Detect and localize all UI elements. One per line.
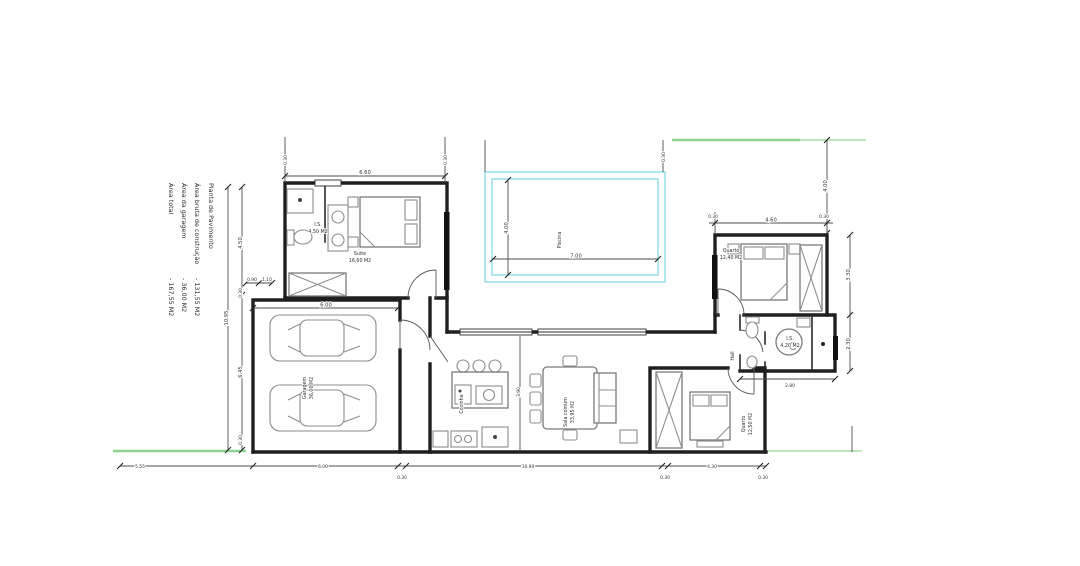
car-icon: [270, 315, 376, 361]
svg-text:- 36,00 M2: - 36,00 M2: [180, 278, 188, 312]
bedroom2-furniture: [656, 372, 730, 448]
svg-text:2.30: 2.30: [846, 338, 852, 350]
svg-text:0.30: 0.30: [660, 475, 670, 481]
svg-text:0.30: 0.30: [238, 435, 244, 445]
dim-left-segments: 4.50 6.45 0.30 0.30: [238, 184, 245, 453]
legend-title: Planta de Pavimento: [207, 183, 215, 249]
svg-text:0.30: 0.30: [238, 288, 244, 298]
dim-top-left-width: 6.60 0.30 0.30: [282, 137, 449, 181]
stool-icon: [473, 360, 485, 372]
dim-right-side: 3.30 2.30: [846, 232, 853, 374]
toilet-tank: [287, 230, 294, 245]
svg-text:- 167,55 M2: - 167,55 M2: [167, 278, 175, 316]
dim-living-divider: 3.90: [516, 336, 522, 450]
stool-icon: [489, 360, 501, 372]
svg-text:4.30: 4.30: [707, 464, 717, 470]
car-icon: [270, 385, 376, 431]
sink-icon: [332, 234, 344, 246]
tv-bench: [620, 430, 637, 443]
room-label-bedroom2: Quarto 12,50 M2: [741, 413, 754, 435]
dining-table: [543, 367, 597, 429]
svg-text:6.00: 6.00: [318, 464, 328, 470]
sink-icon: [797, 318, 810, 327]
dim-left-total: 10.95: [224, 184, 231, 453]
svg-text:10.90: 10.90: [522, 464, 535, 470]
dim-pool: 4.00 7.00: [490, 177, 661, 278]
nightstand: [348, 197, 358, 207]
svg-text:7.00: 7.00: [570, 254, 582, 260]
svg-text:4,50 M2: 4,50 M2: [308, 229, 327, 235]
floor-plan-drawing: Piscina: [0, 0, 1080, 566]
suite-furniture: [287, 189, 420, 296]
svg-text:36,00 M2: 36,00 M2: [309, 377, 315, 399]
svg-text:Quarto: Quarto: [741, 416, 747, 433]
toilet-icon: [746, 322, 758, 338]
dim-pool-extensions: 0.30: [485, 140, 667, 172]
sink-icon: [332, 211, 344, 223]
living-furniture: [530, 356, 637, 443]
svg-text:12,40 M2: 12,40 M2: [720, 255, 742, 261]
window-band: [712, 255, 718, 299]
room-label-suite: Suite 16,60 M2: [349, 251, 371, 264]
svg-text:Área total: Área total: [167, 183, 176, 215]
svg-text:- 131,55 M2: - 131,55 M2: [193, 278, 201, 316]
nightstand: [348, 237, 358, 247]
svg-text:4.60: 4.60: [765, 218, 777, 224]
svg-text:0.30: 0.30: [283, 155, 289, 165]
floor-plan-page: Piscina: [0, 0, 1080, 566]
dim-small-pair: 0.90 1.10: [243, 277, 275, 286]
svg-text:0.30: 0.30: [819, 214, 829, 220]
bedroom1-furniture: [728, 244, 822, 311]
svg-text:0.30: 0.30: [758, 475, 768, 481]
svg-text:0.30: 0.30: [443, 155, 449, 165]
svg-text:4.50: 4.50: [238, 237, 244, 249]
svg-text:1.10: 1.10: [262, 277, 272, 283]
chair: [563, 356, 577, 366]
pool: Piscina: [485, 172, 665, 282]
garage-door: [400, 320, 430, 350]
svg-text:4.00: 4.00: [823, 180, 829, 192]
nightstand: [789, 244, 800, 254]
legend: Planta de Pavimento Área bruta de constr…: [167, 183, 215, 316]
svg-text:0.30: 0.30: [661, 152, 667, 162]
svg-text:3.90: 3.90: [516, 387, 522, 397]
chair: [530, 392, 541, 405]
svg-text:33,95 M2: 33,95 M2: [570, 401, 576, 423]
dim-bedroom1-width: 0.30 0.30 4.60: [708, 212, 833, 233]
bedroom1-door: [718, 289, 744, 315]
window: [315, 180, 341, 186]
svg-text:12,50 M2: 12,50 M2: [748, 413, 754, 435]
svg-text:16,60 M2: 16,60 M2: [349, 258, 371, 264]
svg-text:I.S.: I.S.: [786, 336, 794, 342]
sink-icon: [484, 390, 495, 401]
bed-bench: [697, 441, 723, 447]
dim-bath-width: 2.80: [737, 376, 838, 389]
svg-text:0.30: 0.30: [397, 475, 407, 481]
dim-garage-width: 6.00: [250, 303, 401, 312]
svg-text:I.S.: I.S.: [314, 222, 322, 228]
chair: [530, 410, 541, 423]
dim-bottom: 5.55 6.00 10.90 4.30 0.30 0.30 0.30: [117, 463, 769, 481]
svg-text:5.55: 5.55: [135, 464, 145, 470]
svg-text:0.90: 0.90: [247, 277, 257, 283]
stool-icon: [457, 360, 469, 372]
window-band: [444, 212, 450, 290]
svg-text:Garagem: Garagem: [302, 377, 308, 400]
svg-text:0.30: 0.30: [708, 214, 718, 220]
svg-text:6.00: 6.00: [320, 303, 332, 309]
svg-text:6.60: 6.60: [359, 170, 371, 176]
svg-text:3.30: 3.30: [846, 269, 852, 281]
svg-text:Hall: Hall: [730, 351, 736, 360]
sofa: [594, 373, 616, 423]
svg-text:Sala comum: Sala comum: [563, 397, 569, 427]
appliance: [433, 431, 448, 447]
room-label-kitchen: Cozinha: [459, 394, 465, 413]
svg-text:4.00: 4.00: [504, 222, 510, 234]
kitchen-furniture: [433, 360, 508, 447]
bidet-icon: [747, 356, 757, 368]
kitchen-door-leaf: [430, 336, 448, 362]
chair: [530, 374, 541, 387]
svg-text:Área da garagem: Área da garagem: [180, 183, 189, 238]
svg-text:6.45: 6.45: [238, 366, 244, 378]
window-band: [833, 336, 838, 360]
svg-text:Cozinha: Cozinha: [459, 394, 465, 413]
chair: [563, 430, 577, 440]
shower-icon: [776, 329, 802, 355]
svg-text:Quarto: Quarto: [723, 248, 740, 254]
svg-text:10.95: 10.95: [224, 311, 230, 326]
pool-label: Piscina: [557, 232, 563, 249]
svg-text:4,20 M2: 4,20 M2: [780, 343, 799, 349]
svg-text:2.80: 2.80: [785, 383, 795, 389]
bathroom-furniture: [746, 317, 825, 368]
garage-cars: [270, 315, 376, 431]
room-label-hall: Hall: [730, 351, 736, 360]
suite-door: [408, 270, 436, 298]
svg-text:Área bruta de construção: Área bruta de construção: [193, 183, 202, 264]
svg-text:Suite: Suite: [354, 251, 366, 257]
